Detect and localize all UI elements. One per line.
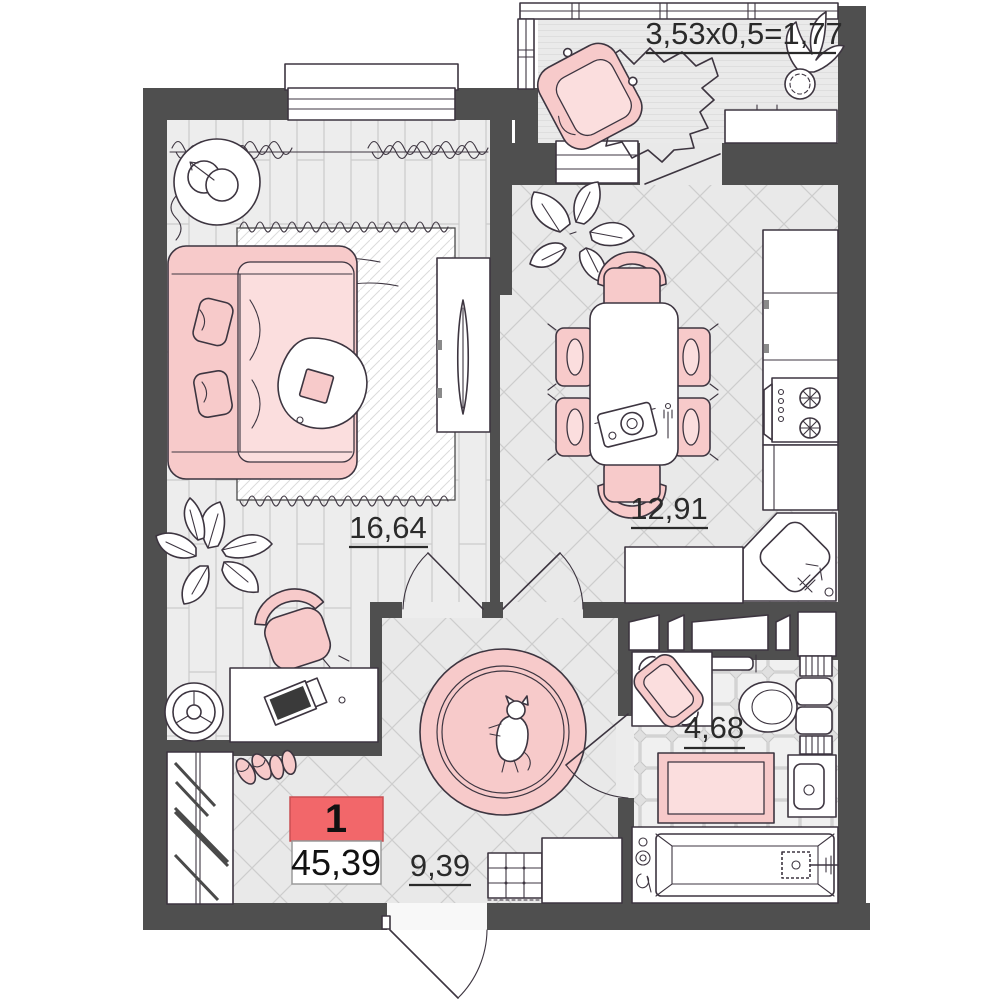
wall-living-kitchen-thick bbox=[490, 120, 512, 295]
burner bbox=[800, 418, 820, 438]
floor-plan-sheet: 1 45,39 bbox=[0, 0, 1000, 1000]
kitchen-area-label: 12,91 bbox=[630, 491, 708, 526]
shoe-rack bbox=[488, 853, 542, 900]
wall-bottom bbox=[143, 903, 870, 930]
burner bbox=[800, 388, 820, 408]
balcony-glazing-left bbox=[518, 19, 534, 89]
stool bbox=[165, 683, 223, 741]
console-handle bbox=[437, 340, 442, 350]
hall-area-label: 9,39 bbox=[410, 848, 470, 883]
living-door-opening bbox=[402, 602, 482, 618]
bathtub bbox=[632, 827, 838, 903]
desk bbox=[230, 668, 378, 742]
stove bbox=[764, 378, 838, 442]
living-window bbox=[285, 64, 458, 120]
bath-area-label: 4,68 bbox=[684, 710, 744, 745]
badge-total-area: 45,39 bbox=[291, 842, 381, 883]
wall-right bbox=[838, 6, 866, 930]
wall-living-kitchen-thin bbox=[490, 293, 500, 606]
kitchen-door-opening bbox=[503, 602, 583, 618]
floor-plan-drawing: 1 45,39 bbox=[0, 0, 1000, 1000]
wall-balcony-left-pier bbox=[515, 88, 538, 145]
tv-console bbox=[437, 258, 490, 432]
bath-mat bbox=[658, 753, 774, 823]
round-rug bbox=[420, 649, 586, 815]
entry-door-opening bbox=[387, 903, 487, 930]
counter-bottom bbox=[625, 547, 743, 603]
badge-rooms-count: 1 bbox=[325, 797, 347, 841]
bath-door-opening bbox=[616, 716, 634, 798]
wall-bath-left-top bbox=[618, 660, 632, 716]
living-area-label: 16,64 bbox=[349, 510, 427, 545]
wall-left bbox=[143, 88, 167, 930]
unit-badge: 1 45,39 bbox=[290, 797, 383, 884]
mirror-wardrobe bbox=[167, 752, 233, 904]
coffee-table bbox=[278, 338, 367, 428]
hall-cabinet bbox=[542, 838, 622, 903]
console-handle bbox=[437, 388, 442, 398]
bathroom-sink bbox=[788, 755, 836, 817]
balcony-dimension-label: 3,53x0,5=1,77 bbox=[645, 16, 842, 51]
